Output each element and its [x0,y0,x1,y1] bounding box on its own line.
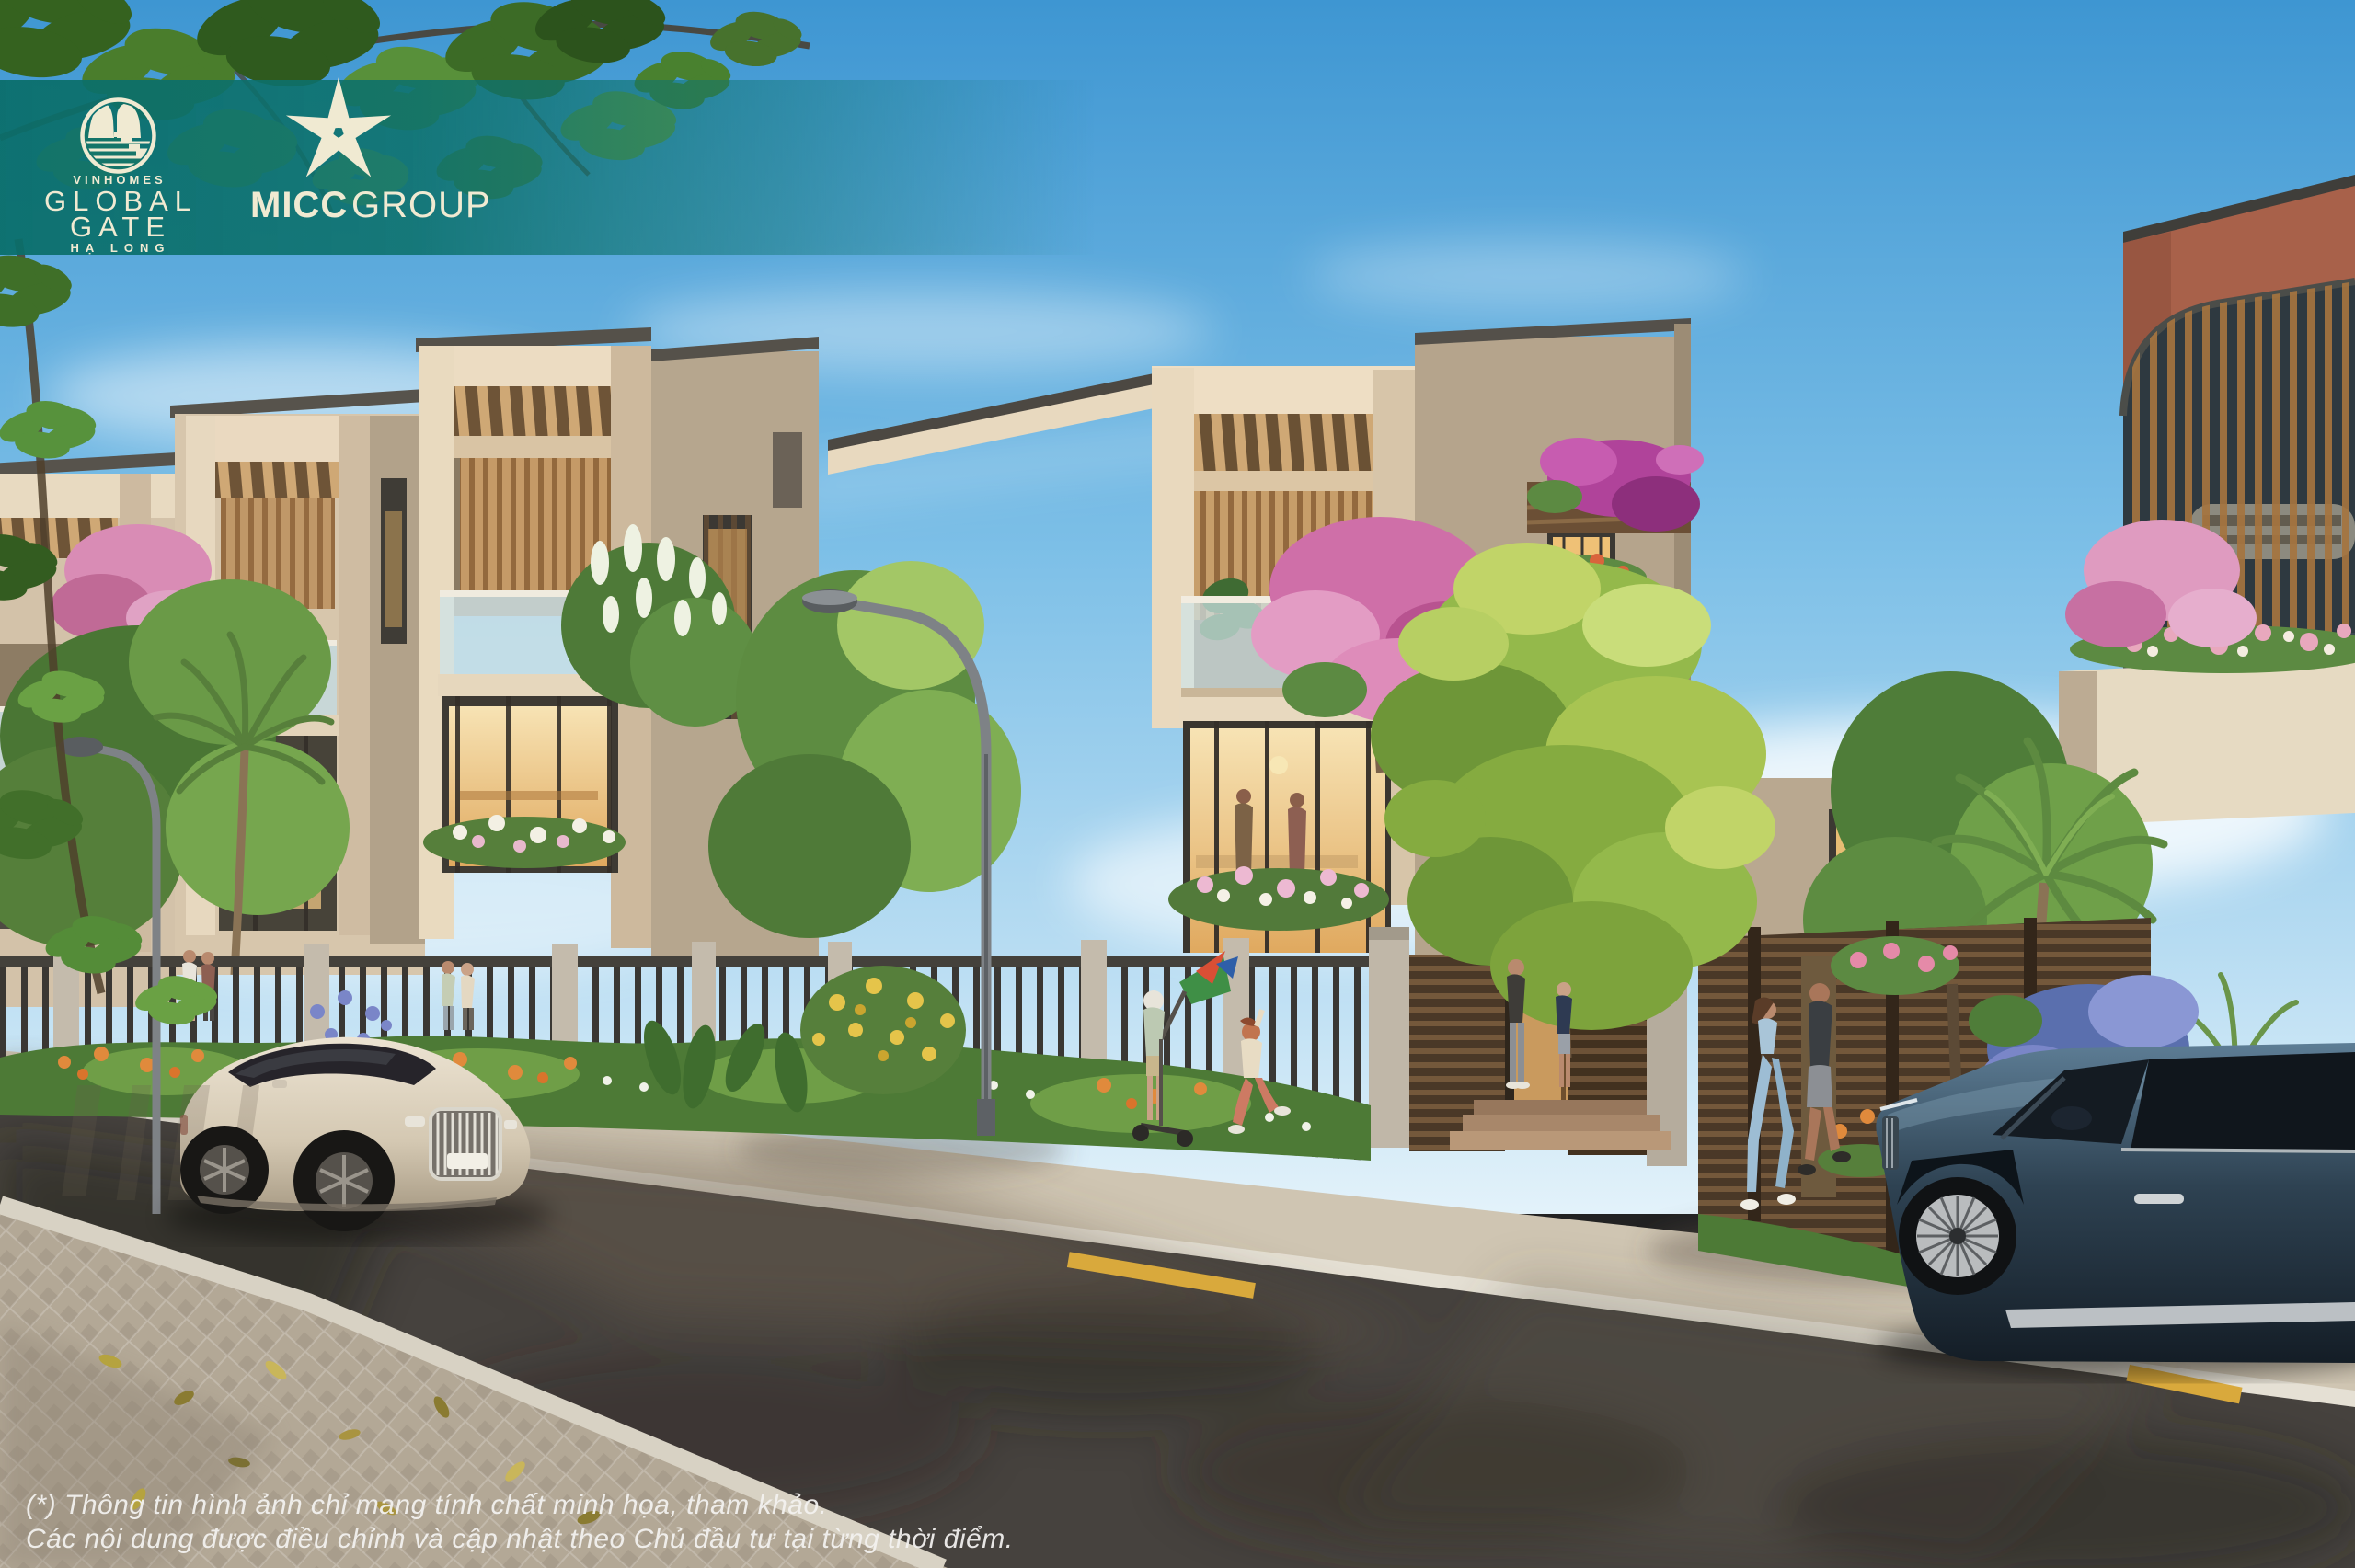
halong-text: HẠ LONG [71,241,171,255]
blue-car [1876,1043,2355,1378]
bougainvillea [1527,438,1704,533]
micc-bold-text: MICC [250,185,348,225]
micc-regular-text: GROUP [351,185,491,225]
disclaimer-line-1: (*) Thông tin hình ảnh chỉ mang tính chấ… [26,1490,828,1520]
gate-text: GATE [70,211,171,243]
disclaimer-line-2: Các nội dung được điều chỉnh và cập nhật… [26,1524,1014,1554]
scene-canvas: VINHOMES GLOBAL GATE HẠ LONG MICC GROUP … [0,0,2355,1568]
render-scene: VINHOMES GLOBAL GATE HẠ LONG MICC GROUP … [0,0,2355,1568]
logo-band: VINHOMES GLOBAL GATE HẠ LONG MICC GROUP [0,80,1095,255]
yellow-rose-bush [800,966,966,1094]
entrance-steps [1450,1100,1671,1150]
